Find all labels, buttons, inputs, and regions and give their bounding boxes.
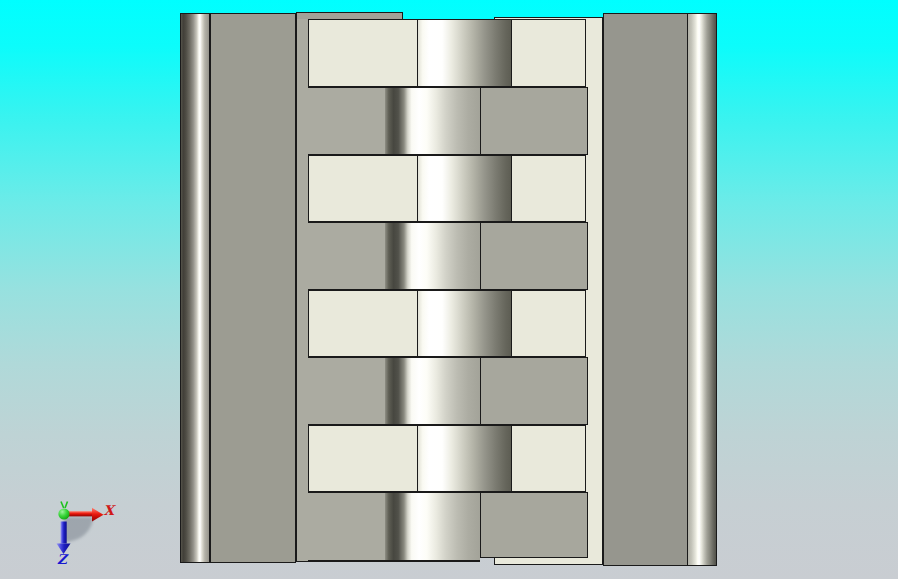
knuckle-face-left	[308, 155, 418, 222]
hinge-pin-barrel	[418, 425, 512, 492]
knuckle-face-left	[308, 290, 418, 357]
knuckle-face-right	[512, 425, 586, 492]
origin-ball[interactable]	[58, 508, 69, 519]
triad-shadow	[64, 517, 93, 542]
x-axis-label: X	[104, 502, 117, 518]
cad-viewport[interactable]: X Z	[0, 0, 898, 579]
hinge-pin-barrel	[418, 155, 512, 222]
knuckle-face-left	[308, 19, 418, 87]
knuckle-row-cream[interactable]	[0, 290, 898, 357]
knuckle-face-right	[512, 290, 586, 357]
knuckle-row-gray[interactable]	[0, 222, 898, 290]
knuckle-row-cream[interactable]	[0, 19, 898, 87]
hinge-pin-barrel	[385, 357, 480, 425]
knuckle-row-gray[interactable]	[0, 357, 898, 425]
y-axis-stub	[61, 502, 68, 509]
knuckle-face-left	[308, 492, 385, 561]
knuckle-face-right	[512, 19, 586, 87]
hinge-pin-barrel	[385, 222, 480, 290]
knuckle-face-left	[308, 425, 418, 492]
knuckle-face-left	[308, 357, 385, 425]
hinge-pin-barrel	[385, 87, 480, 155]
knuckle-face-left	[308, 222, 385, 290]
knuckle-face-right	[480, 222, 588, 290]
knuckle-face-left	[308, 87, 385, 155]
hinge-pin-barrel	[385, 492, 480, 561]
hinge-pin-barrel	[418, 19, 512, 87]
z-axis-label: Z	[57, 551, 69, 567]
knuckle-face-right	[480, 357, 588, 425]
knuckle-face-right	[480, 492, 588, 558]
knuckle-face-right	[480, 87, 588, 155]
orientation-triad[interactable]: X Z	[40, 478, 140, 578]
knuckle-face-right	[512, 155, 586, 222]
hinge-pin-barrel	[418, 290, 512, 357]
knuckle-row-cream[interactable]	[0, 155, 898, 222]
knuckle-row-gray[interactable]	[0, 87, 898, 155]
